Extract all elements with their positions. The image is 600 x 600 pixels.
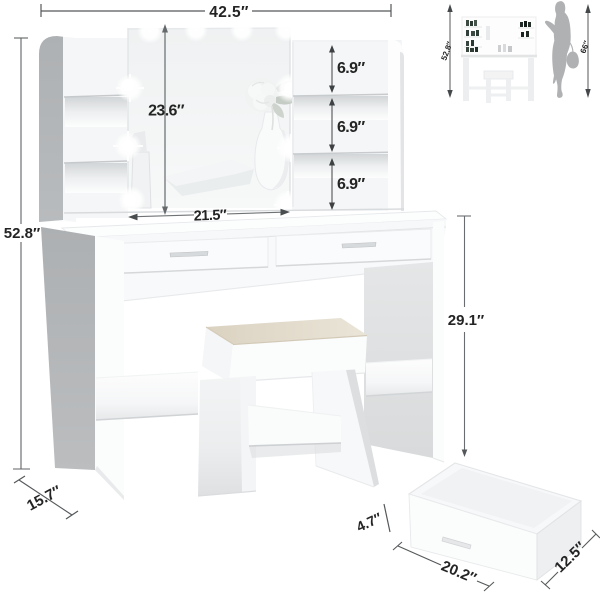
svg-text:6.9″: 6.9″ <box>337 176 365 193</box>
svg-text:42.5″: 42.5″ <box>209 4 249 21</box>
svg-text:29.1″: 29.1″ <box>448 312 484 329</box>
svg-text:23.6″: 23.6″ <box>148 103 185 120</box>
svg-text:52.8″: 52.8″ <box>4 225 40 242</box>
svg-text:6.9″: 6.9″ <box>337 119 365 136</box>
svg-text:21.5″: 21.5″ <box>193 207 227 224</box>
svg-text:4.7″: 4.7″ <box>354 509 385 535</box>
svg-text:52.8″: 52.8″ <box>439 40 454 61</box>
svg-text:66″: 66″ <box>579 39 592 54</box>
svg-text:6.9″: 6.9″ <box>337 60 365 77</box>
